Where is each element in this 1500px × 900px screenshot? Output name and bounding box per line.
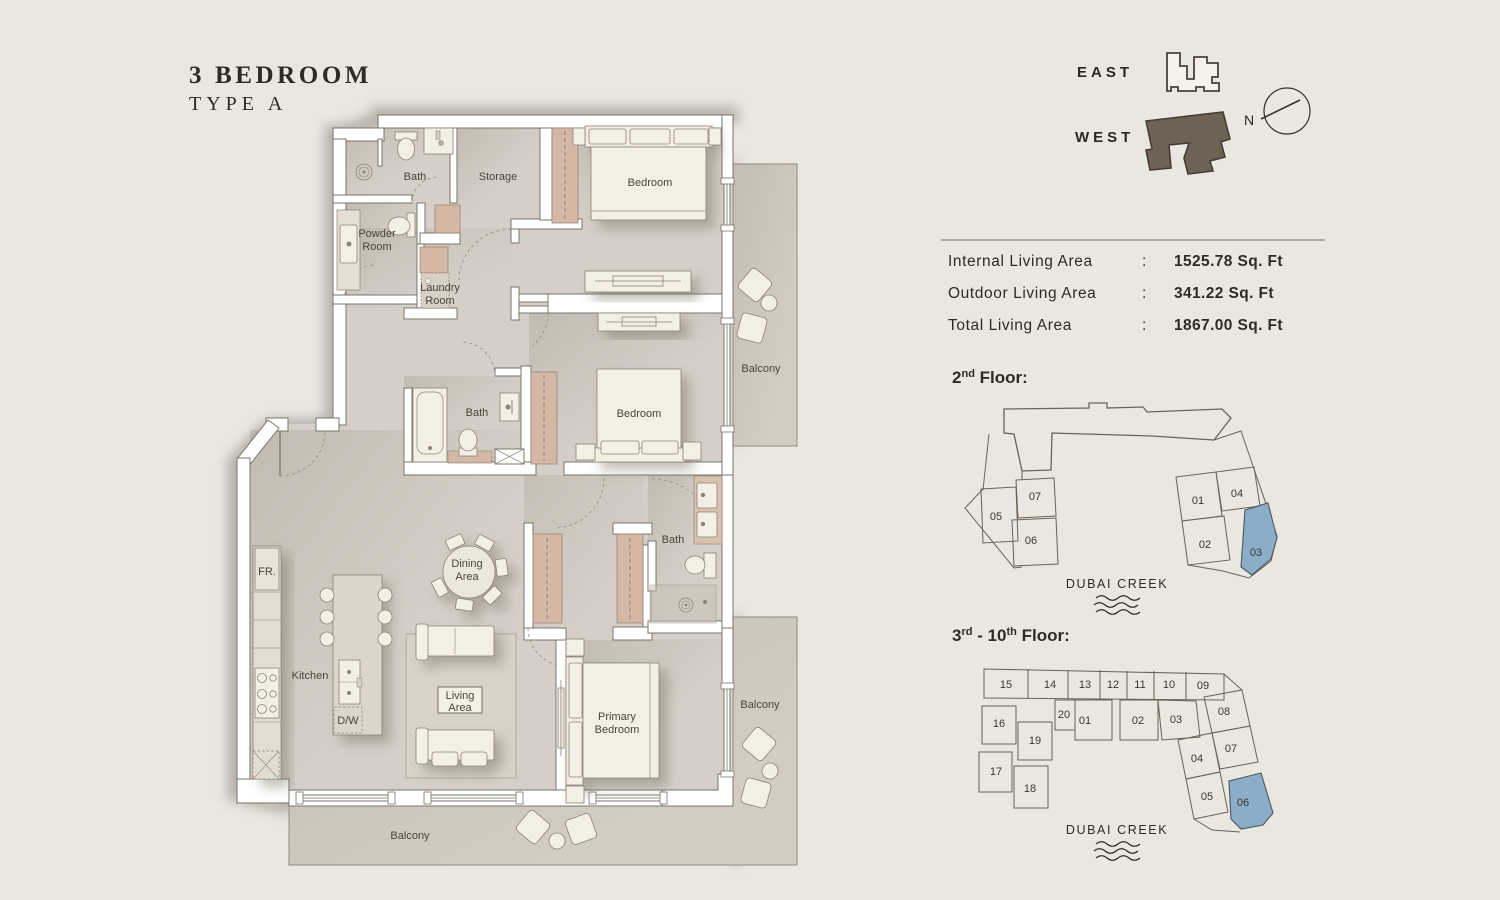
svg-text:Bedroom: Bedroom: [628, 177, 673, 189]
svg-text:Dining: Dining: [451, 558, 482, 570]
svg-text:16: 16: [993, 718, 1005, 730]
svg-text:07: 07: [1029, 491, 1041, 503]
svg-text:01: 01: [1192, 495, 1204, 507]
svg-text:Storage: Storage: [479, 171, 518, 183]
svg-text:Area: Area: [448, 702, 472, 714]
svg-text:15: 15: [1000, 679, 1012, 691]
svg-text:02: 02: [1132, 715, 1144, 727]
svg-text:09: 09: [1197, 680, 1209, 692]
svg-text:12: 12: [1107, 679, 1119, 691]
svg-text:Laundry: Laundry: [420, 282, 460, 294]
svg-text:18: 18: [1024, 783, 1036, 795]
svg-text:08: 08: [1218, 706, 1230, 718]
svg-text:Total Living Area: Total Living Area: [948, 317, 1072, 334]
svg-text:Outdoor Living Area: Outdoor Living Area: [948, 285, 1096, 302]
svg-text:07: 07: [1225, 743, 1237, 755]
svg-text:05: 05: [990, 511, 1002, 523]
svg-text::: :: [1142, 285, 1146, 302]
svg-text:DUBAI CREEK: DUBAI CREEK: [1066, 577, 1168, 591]
svg-text:Balcony: Balcony: [390, 830, 430, 842]
svg-text:341.22 Sq. Ft: 341.22 Sq. Ft: [1174, 285, 1274, 302]
svg-text:Powder: Powder: [358, 228, 396, 240]
svg-text:Area: Area: [455, 571, 479, 583]
svg-text:Bath: Bath: [466, 407, 489, 419]
svg-text:10: 10: [1163, 679, 1175, 691]
svg-text:3 BEDROOM: 3 BEDROOM: [189, 62, 372, 89]
svg-text:06: 06: [1025, 535, 1037, 547]
svg-text:Bedroom: Bedroom: [595, 724, 640, 736]
svg-text:Bath: Bath: [662, 534, 685, 546]
svg-text:04: 04: [1191, 753, 1203, 765]
svg-text:WEST: WEST: [1075, 129, 1134, 146]
svg-text:01: 01: [1079, 715, 1091, 727]
svg-text:Internal Living Area: Internal Living Area: [948, 253, 1093, 270]
svg-text:1525.78 Sq. Ft: 1525.78 Sq. Ft: [1174, 253, 1283, 270]
svg-text:03: 03: [1170, 714, 1182, 726]
svg-text:Balcony: Balcony: [741, 363, 781, 375]
svg-text:04: 04: [1231, 488, 1243, 500]
svg-text:17: 17: [990, 766, 1002, 778]
svg-text:Primary: Primary: [598, 711, 636, 723]
svg-text:1867.00 Sq. Ft: 1867.00 Sq. Ft: [1174, 317, 1283, 334]
svg-text::: :: [1142, 317, 1146, 334]
svg-text:Bedroom: Bedroom: [617, 408, 662, 420]
svg-text:06: 06: [1237, 797, 1249, 809]
svg-text:Kitchen: Kitchen: [292, 670, 329, 682]
svg-text:N: N: [1244, 112, 1254, 128]
svg-text:TYPE A: TYPE A: [189, 93, 287, 115]
svg-text:13: 13: [1079, 679, 1091, 691]
svg-text:FR.: FR.: [258, 566, 276, 578]
svg-text:14: 14: [1044, 679, 1056, 691]
svg-text:Bath: Bath: [404, 171, 427, 183]
svg-text:EAST: EAST: [1077, 64, 1133, 81]
svg-text:Balcony: Balcony: [740, 699, 780, 711]
svg-text:Room: Room: [362, 241, 391, 253]
svg-text:05: 05: [1201, 791, 1213, 803]
svg-text:20: 20: [1058, 709, 1070, 721]
svg-text:02: 02: [1199, 539, 1211, 551]
svg-text::: :: [1142, 253, 1146, 270]
svg-text:Living: Living: [446, 690, 475, 702]
svg-text:DUBAI CREEK: DUBAI CREEK: [1066, 823, 1168, 837]
svg-text:03: 03: [1250, 547, 1262, 559]
svg-text:Room: Room: [425, 295, 454, 307]
svg-text:11: 11: [1134, 679, 1145, 691]
svg-text:19: 19: [1029, 735, 1041, 747]
svg-text:D/W: D/W: [337, 715, 359, 727]
